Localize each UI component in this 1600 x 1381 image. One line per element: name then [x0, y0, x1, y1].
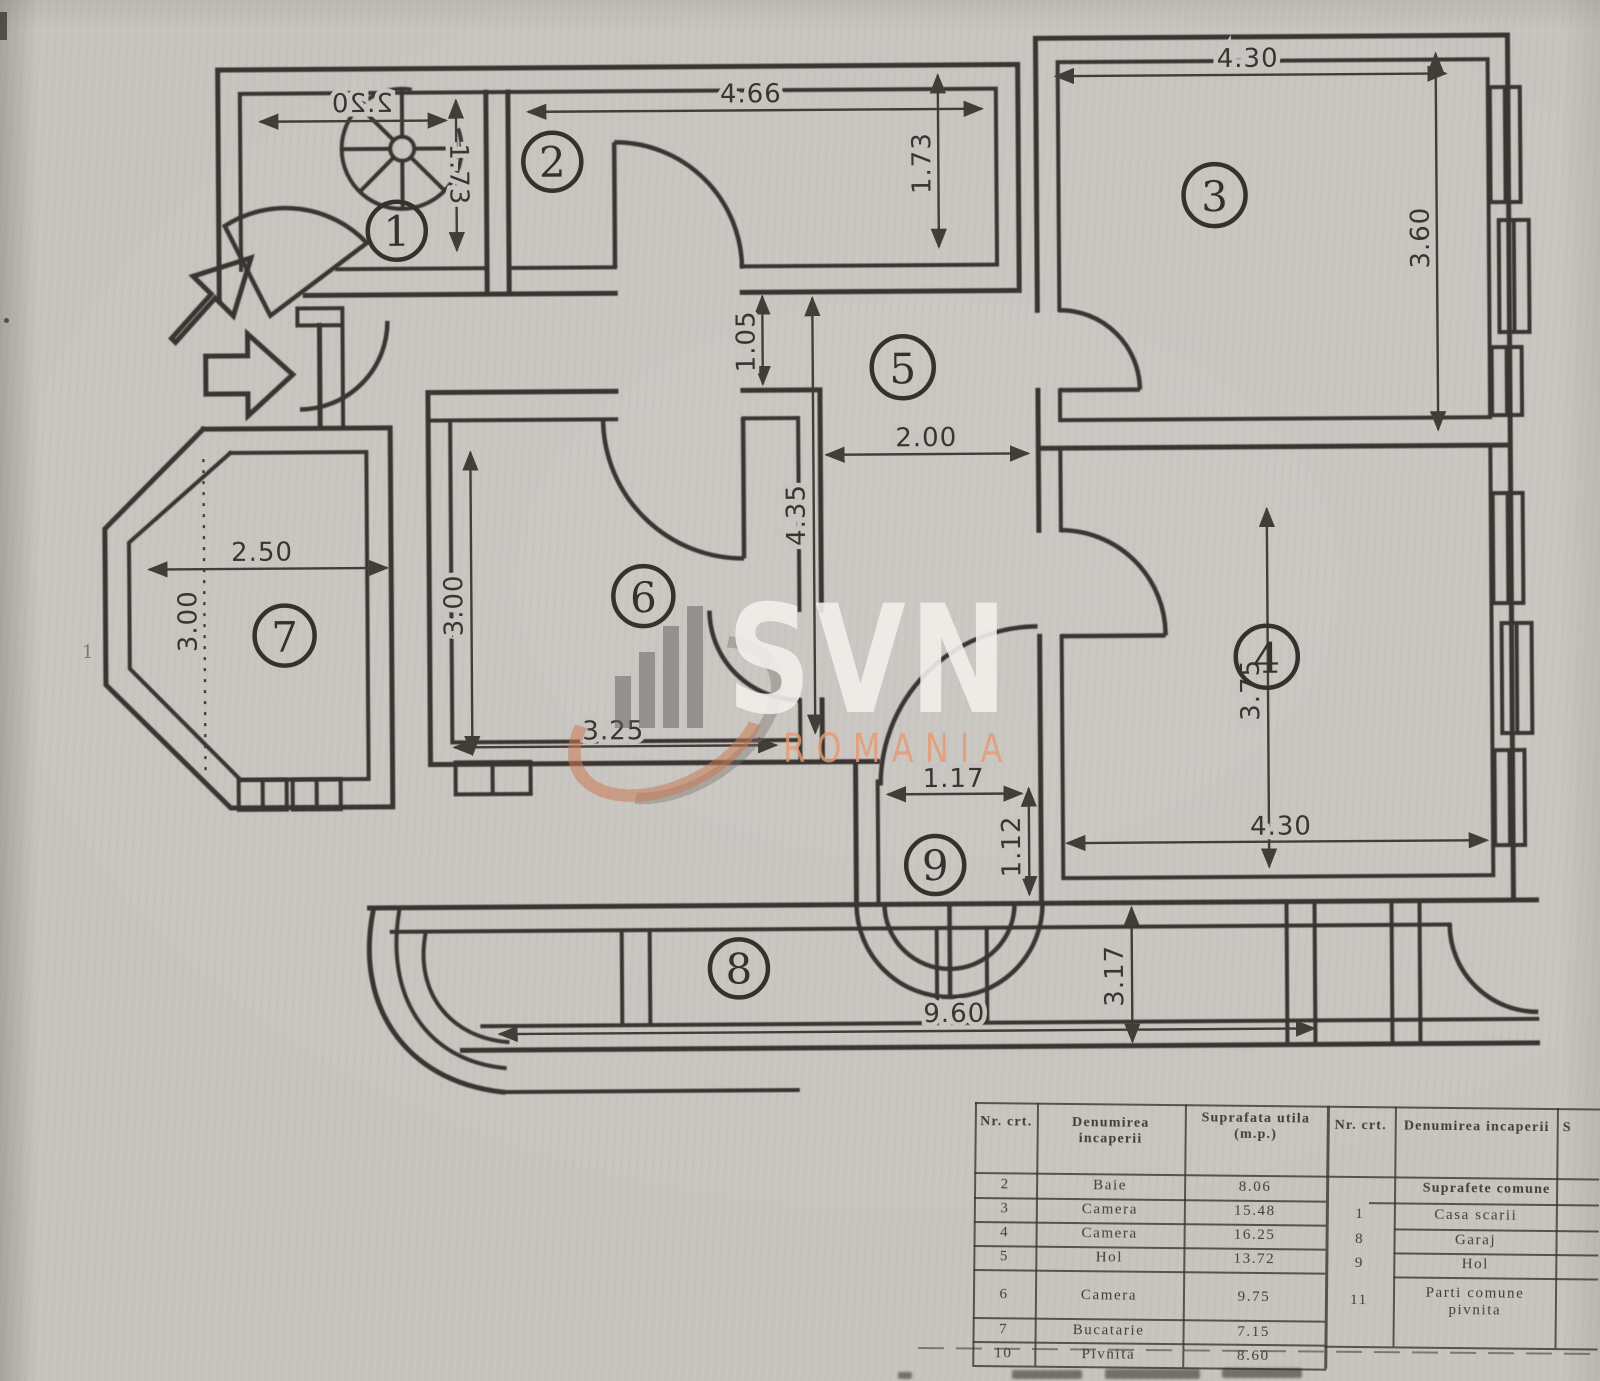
svg-text:4: 4 — [1253, 634, 1280, 683]
cutoff-text-smudge — [898, 1372, 912, 1379]
room-area-table: Nr. crt. Denumirea incaperii Suprafata u… — [972, 1102, 1600, 1377]
dim-room1-width: 2.20 — [331, 89, 393, 119]
dim-strip-width: 9.60 — [923, 999, 985, 1029]
header-nr-left: Nr. crt. — [978, 1114, 1035, 1131]
row-area: 8.06 — [1184, 1178, 1326, 1197]
room-marker-8: 8 — [710, 939, 768, 997]
row-name: Casa scarii — [1400, 1206, 1552, 1225]
scanned-floorplan-page: { "plan": { "rooms": { "r1":"1","r2":"2"… — [0, 0, 1600, 1381]
dim-room7-height: 3.00 — [173, 590, 203, 652]
dim-room3-width: 4.30 — [1217, 44, 1279, 74]
dim-room6-height: 3.00 — [439, 574, 469, 636]
row-nr: 3 — [974, 1200, 1036, 1218]
dim-room7-width: 2.50 — [231, 538, 293, 568]
room-marker-6: 6 — [613, 566, 673, 626]
cutoff-text-smudge — [1105, 1369, 1200, 1379]
dim-room2-height: 1.73 — [907, 132, 937, 194]
dim-room9-height: 1.12 — [997, 815, 1027, 877]
header-area-left: Suprafata utila (m.p.) — [1189, 1110, 1323, 1144]
dim-room2-width: 4.66 — [720, 79, 782, 109]
row-area: 16.25 — [1184, 1226, 1326, 1245]
row-area: 15.48 — [1184, 1202, 1326, 1221]
room-number-markers: 1 2 3 4 5 6 7 8 9 — [251, 128, 1300, 1001]
row-name: Hol — [1035, 1249, 1183, 1268]
row-name: Parti comune pivnita — [1409, 1285, 1541, 1321]
row-nr: 7 — [973, 1321, 1035, 1339]
common-areas-span: Suprafete comune — [1374, 1180, 1599, 1199]
svg-text:2: 2 — [539, 138, 566, 187]
room-marker-7: 7 — [254, 605, 314, 665]
row-name: Camera — [1036, 1201, 1184, 1220]
room-marker-9: 9 — [906, 836, 964, 894]
dim-passage-height: 1.05 — [731, 310, 761, 372]
svg-text:1: 1 — [383, 207, 410, 256]
row-nr: 6 — [973, 1286, 1035, 1304]
row-nr: 4 — [974, 1224, 1036, 1242]
dim-room3-height: 3.60 — [1406, 207, 1436, 269]
dim-room9-width: 1.17 — [923, 764, 985, 794]
row-nr: 8 — [1327, 1231, 1391, 1249]
row-area: 13.72 — [1183, 1250, 1325, 1269]
svg-text:9: 9 — [922, 841, 949, 890]
entrance-arrows — [171, 258, 293, 417]
row-name: Camera — [1036, 1225, 1184, 1244]
row-area: 7.15 — [1183, 1323, 1325, 1342]
header-area-right: S — [1563, 1120, 1600, 1137]
walls — [101, 35, 1537, 1095]
entrance-arrow-lower-icon — [206, 334, 294, 417]
row-nr: 1 — [1328, 1206, 1392, 1224]
row-name: Hol — [1399, 1255, 1551, 1274]
room-marker-2: 2 — [523, 133, 581, 191]
row-name: Baie — [1036, 1177, 1184, 1196]
stray-mark: 1 — [82, 642, 93, 663]
room-marker-4: 4 — [1236, 626, 1298, 688]
dim-hall-width: 2.00 — [895, 423, 957, 453]
scan-speck — [0, 12, 7, 40]
row-nr: 9 — [1327, 1255, 1391, 1273]
dim-hall-height: 4.35 — [782, 484, 812, 546]
svg-text:3: 3 — [1201, 172, 1228, 221]
cutoff-text-smudge — [1012, 1370, 1082, 1379]
row-nr: 11 — [1327, 1292, 1391, 1310]
dim-room1-height: 1.73 — [443, 143, 473, 205]
dim-room4-width: 4.30 — [1250, 811, 1312, 841]
row-area: 9.75 — [1183, 1288, 1325, 1307]
row-name: Camera — [1035, 1287, 1183, 1306]
svg-text:6: 6 — [630, 573, 657, 622]
scan-speck — [4, 318, 9, 323]
row-nr: 2 — [974, 1176, 1036, 1194]
header-nr-right: Nr. crt. — [1329, 1118, 1393, 1135]
room-marker-1: 1 — [368, 202, 426, 260]
room-marker-5: 5 — [872, 336, 934, 398]
dim-back-height: 3.17 — [1100, 945, 1130, 1007]
svg-text:8: 8 — [725, 944, 752, 993]
room-marker-3: 3 — [1183, 164, 1245, 226]
dim-room6-width: 3.25 — [582, 716, 644, 746]
svg-text:5: 5 — [889, 344, 916, 393]
row-name: Bucatarie — [1035, 1322, 1183, 1341]
svg-text:7: 7 — [271, 613, 298, 662]
header-name-right: Denumirea incaperii — [1401, 1118, 1553, 1136]
header-name-left: Denumirea incaperii — [1041, 1115, 1181, 1149]
row-nr: 5 — [973, 1248, 1035, 1266]
cutoff-text-smudge — [1222, 1368, 1302, 1378]
row-name: Garaj — [1399, 1231, 1551, 1250]
